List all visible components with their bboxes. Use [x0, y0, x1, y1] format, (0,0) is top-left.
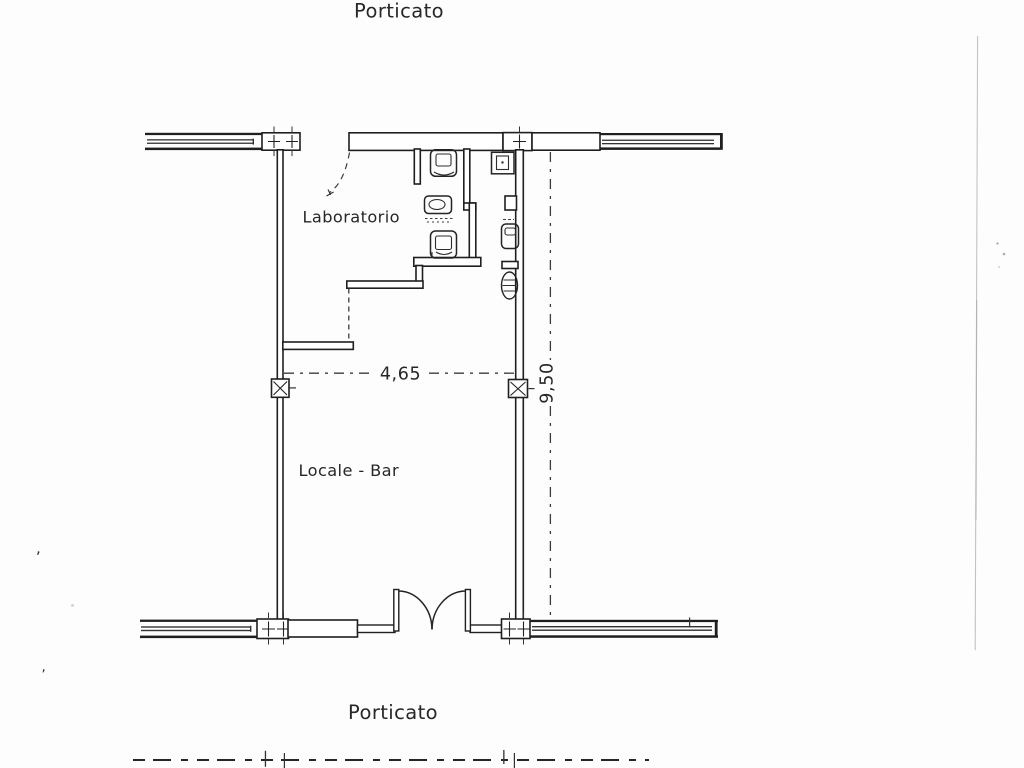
laboratorio-south-stub-wall: [283, 342, 354, 349]
bottom-wall-connector-right: [470, 625, 503, 633]
dimension-width: 4,65: [284, 365, 514, 385]
porticato-bottom-label: Porticato: [348, 701, 438, 724]
wc-fixtures-left: [425, 150, 457, 258]
scanned-floor-plan-page: 4,65 9,50 Porticato Laboratorio Locale -…: [0, 0, 1024, 768]
lower-dashed-boundary: [133, 750, 649, 768]
wc-middle-wall-upper: [464, 149, 470, 207]
wc-south-wall: [414, 258, 481, 267]
toilet-fixture-1: [431, 150, 457, 177]
toilet-fixture-2: [431, 231, 457, 258]
wc-partition-walls: [283, 149, 518, 349]
bottom-wall: [140, 613, 718, 645]
top-wall-window-left: [145, 133, 262, 150]
top-wall-solid-right: [532, 133, 600, 150]
porticato-top-label: Porticato: [354, 0, 444, 23]
door-leaf-left: [394, 590, 399, 632]
floor-plan-drawing: 4,65 9,50 Porticato Laboratorio Locale -…: [0, 0, 1024, 768]
bottom-wall-sill: [288, 620, 358, 637]
scan-speck-comma-upper: ,: [36, 539, 41, 557]
scan-speck: [71, 604, 74, 607]
sink-fixture: [425, 196, 456, 222]
laboratorio-label: Laboratorio: [303, 208, 400, 227]
scan-speck: [1003, 253, 1006, 256]
wc-left-stub-wall: [414, 149, 420, 184]
wc-fixtures-right: [492, 152, 519, 299]
left-wall-pillar: [272, 379, 297, 397]
door-swing-arc-top: [327, 153, 350, 197]
scan-speck: [996, 242, 998, 244]
door-leaf-right: [465, 590, 470, 632]
entrance-double-door: [394, 590, 471, 632]
bottom-wall-connector-left: [358, 625, 396, 633]
wc-middle-wall-lower: [469, 203, 476, 260]
dimension-height: 9,50: [538, 152, 558, 619]
step-wall-horizontal: [347, 281, 423, 288]
door-swing-arrow-icon: [327, 190, 334, 197]
bottom-wall-pillar-left: [257, 613, 290, 645]
dimension-height-label: 9,50: [538, 362, 558, 403]
door-swing-arc-right: [432, 591, 465, 630]
door-swing-arc-left: [399, 591, 432, 630]
radiator-fixture: [502, 272, 518, 299]
dimension-width-label: 4,65: [380, 365, 421, 385]
bottom-wall-window-right: [530, 618, 718, 638]
bottom-wall-window-left: [140, 620, 257, 639]
top-wall-window-right: [600, 133, 723, 150]
scan-speck: [998, 266, 1000, 268]
top-wall: [145, 127, 723, 157]
scan-speck-comma-lower: ,: [42, 659, 46, 675]
locale-bar-label: Locale - Bar: [299, 461, 400, 480]
right-wall: [509, 150, 535, 621]
right-wall-notch: [505, 196, 517, 210]
left-wall: [272, 150, 297, 621]
right-wall-stub-foot: [502, 262, 518, 269]
washbasin-fixture: [492, 152, 515, 174]
top-wall-solid-middle: [349, 133, 503, 151]
right-wall-pillar: [509, 380, 535, 398]
